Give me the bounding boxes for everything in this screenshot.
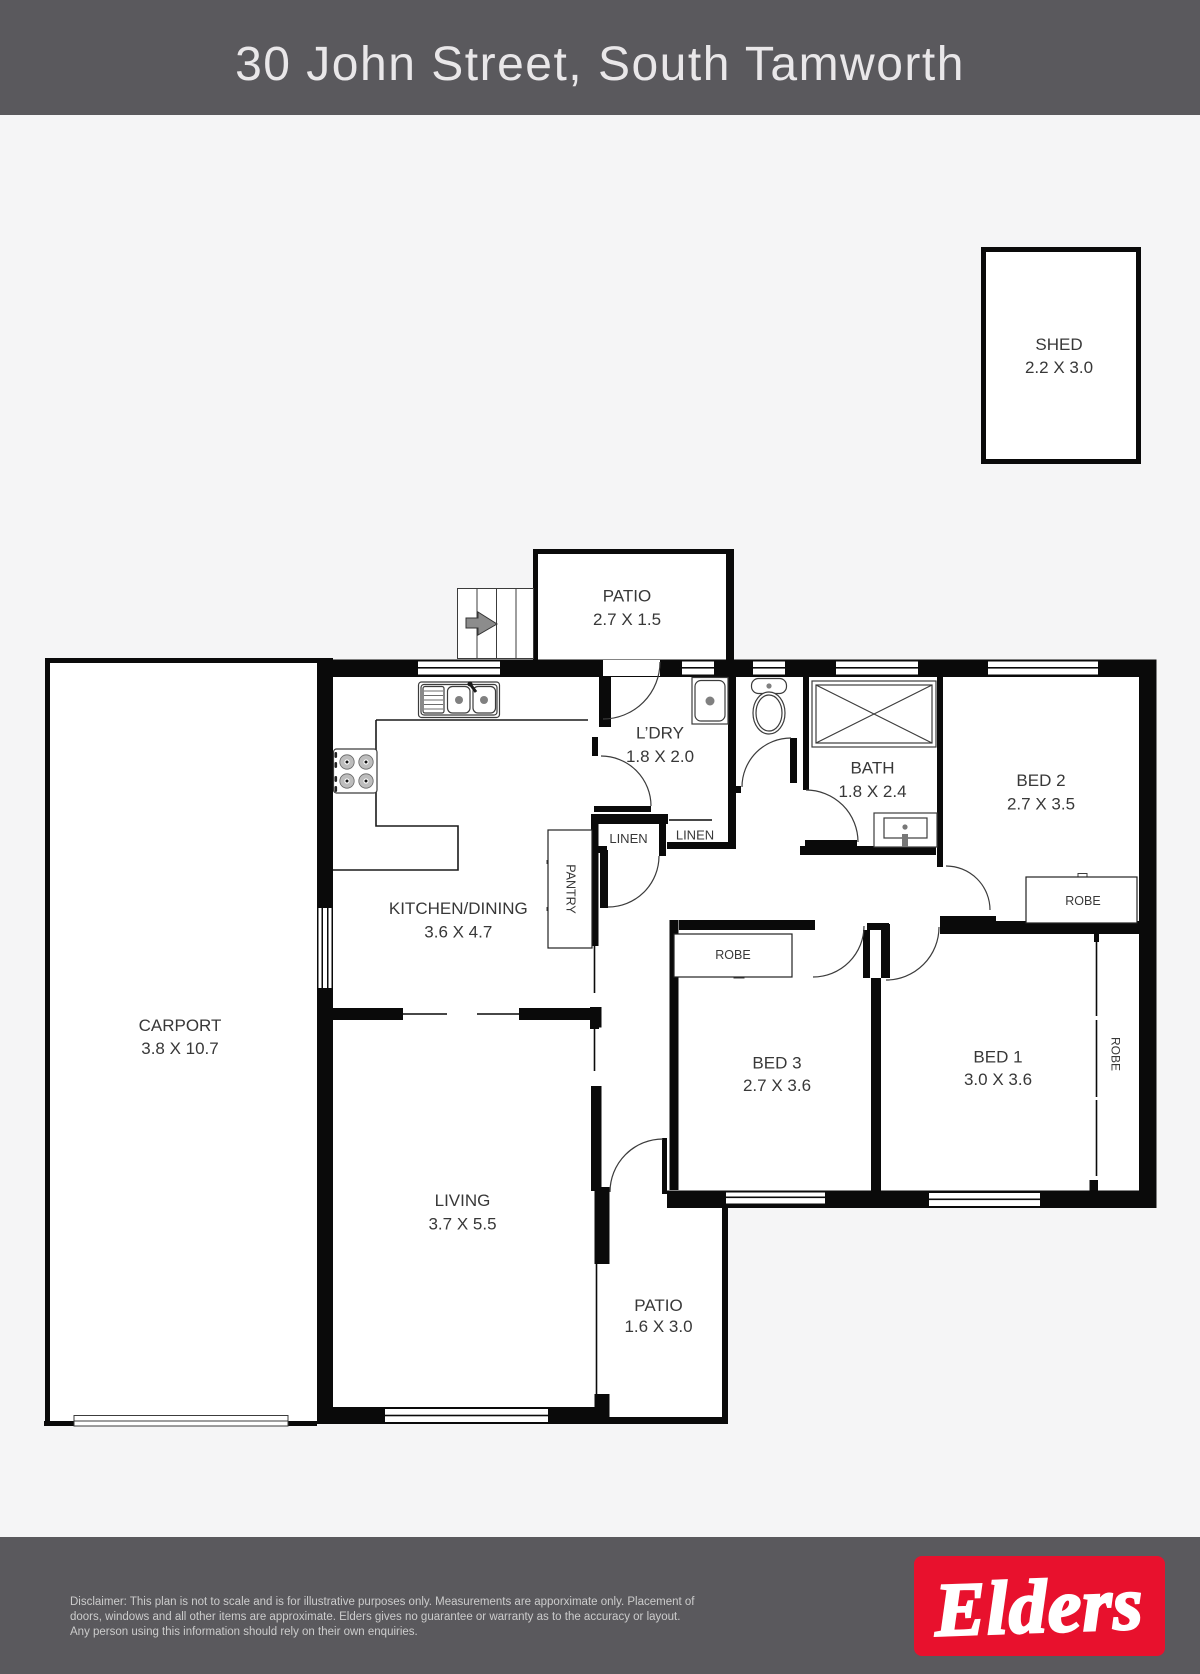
svg-text:3.6 X 4.7: 3.6 X 4.7 — [424, 923, 492, 942]
svg-text:LINEN: LINEN — [609, 831, 647, 846]
svg-text:BED 2: BED 2 — [1016, 771, 1065, 790]
svg-text:2.7 X 3.5: 2.7 X 3.5 — [1007, 794, 1075, 813]
svg-text:KITCHEN/DINING: KITCHEN/DINING — [389, 899, 528, 918]
svg-text:ROBE: ROBE — [1109, 1037, 1123, 1071]
svg-text:1.6 X 3.0: 1.6 X 3.0 — [624, 1317, 692, 1336]
svg-text:3.7 X 5.5: 3.7 X 5.5 — [428, 1214, 496, 1233]
svg-text:L’DRY: L’DRY — [636, 724, 684, 743]
svg-text:3.8 X 10.7: 3.8 X 10.7 — [141, 1039, 219, 1058]
svg-text:PANTRY: PANTRY — [564, 864, 578, 914]
svg-text:Any person using this informat: Any person using this information should… — [70, 1626, 418, 1638]
svg-text:LINEN: LINEN — [676, 828, 714, 843]
svg-text:BATH: BATH — [850, 759, 894, 778]
svg-text:ROBE: ROBE — [1065, 894, 1100, 908]
svg-text:2.2 X 3.0: 2.2 X 3.0 — [1025, 358, 1093, 377]
svg-text:CARPORT: CARPORT — [139, 1016, 222, 1035]
svg-text:ROBE: ROBE — [715, 948, 750, 962]
svg-text:Elders: Elders — [932, 1561, 1145, 1652]
svg-text:1.8 X 2.0: 1.8 X 2.0 — [626, 747, 694, 766]
svg-text:BED 1: BED 1 — [973, 1048, 1022, 1067]
svg-text:SHED: SHED — [1035, 335, 1082, 354]
svg-text:LIVING: LIVING — [435, 1191, 491, 1210]
svg-text:Disclaimer: This plan is not t: Disclaimer: This plan is not to scale an… — [70, 1596, 695, 1608]
svg-text:2.7 X 1.5: 2.7 X 1.5 — [593, 610, 661, 629]
svg-text:3.0 X 3.6: 3.0 X 3.6 — [964, 1070, 1032, 1089]
svg-text:30 John Street, South Tamworth: 30 John Street, South Tamworth — [235, 38, 965, 91]
svg-text:BED 3: BED 3 — [752, 1054, 801, 1073]
svg-text:1.8 X 2.4: 1.8 X 2.4 — [838, 782, 906, 801]
svg-text:PATIO: PATIO — [634, 1296, 683, 1315]
svg-text:2.7 X 3.6: 2.7 X 3.6 — [743, 1076, 811, 1095]
svg-text:PATIO: PATIO — [603, 587, 652, 606]
svg-text:doors, windows and all other i: doors, windows and all other items are a… — [70, 1611, 680, 1623]
